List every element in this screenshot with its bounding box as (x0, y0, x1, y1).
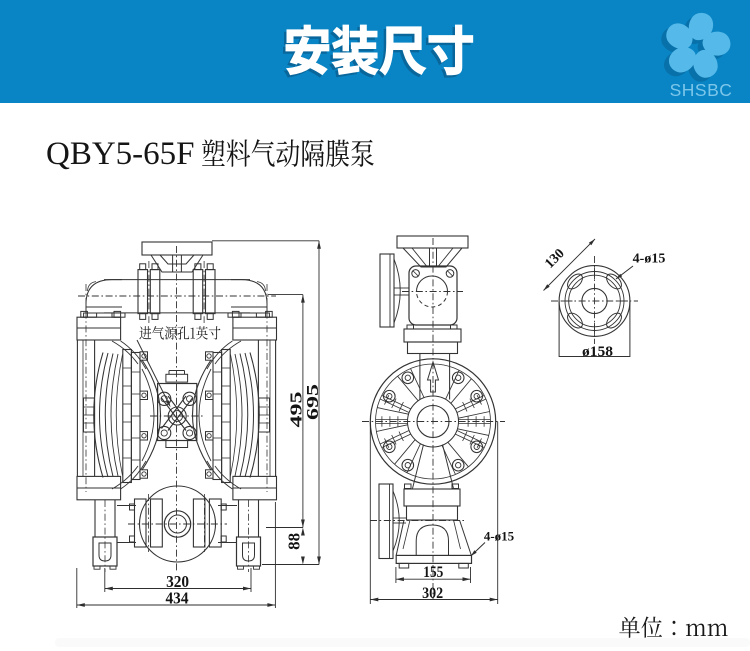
svg-text:88: 88 (285, 533, 304, 550)
svg-text:302: 302 (422, 585, 443, 602)
svg-text:QBY5-65F: QBY5-65F (46, 136, 195, 172)
svg-text:4-ø15: 4-ø15 (484, 529, 515, 544)
svg-text:434: 434 (166, 588, 189, 607)
svg-text:4-ø15: 4-ø15 (633, 252, 666, 267)
svg-text:SHSBC: SHSBC (670, 80, 733, 100)
svg-text:ø158: ø158 (582, 344, 613, 360)
svg-text:695: 695 (303, 384, 322, 420)
svg-text:155: 155 (423, 564, 443, 581)
